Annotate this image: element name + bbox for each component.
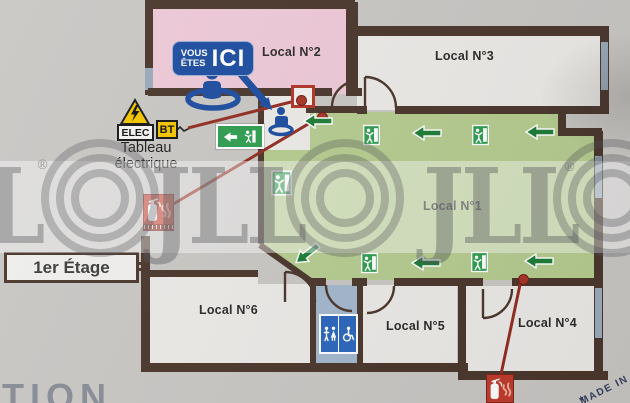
wc-men-women-icon xyxy=(321,316,338,352)
toilet-signs xyxy=(319,314,358,354)
room-label-local-2: Local N°2 xyxy=(262,45,321,59)
room-label-local-6: Local N°6 xyxy=(199,303,258,317)
leader-dot xyxy=(296,95,307,106)
exit-direction-arrow-icon xyxy=(525,124,555,140)
exit-direction-arrow-icon xyxy=(412,125,442,141)
watermark-circle-logo xyxy=(40,138,160,258)
bt-label-box: BT xyxy=(156,120,178,139)
badge-text-ici: ICI xyxy=(212,45,246,73)
exit-runner-icon xyxy=(243,129,257,144)
exit-direction-arrow-icon xyxy=(303,113,333,129)
exit-arrow-left-icon xyxy=(223,131,238,143)
wheelchair-accessible-icon xyxy=(339,316,356,352)
watermark-circle-logo xyxy=(285,138,405,258)
fire-extinguisher-icon xyxy=(486,374,514,403)
room-label-local-5: Local N°5 xyxy=(386,319,445,333)
electric-warning-triangle-icon xyxy=(120,98,150,126)
watermark-bottom-fragment: TION xyxy=(2,376,112,403)
you-are-here-badge: VOUS ÊTES ICI xyxy=(172,41,254,76)
emergency-exit-door-icon xyxy=(472,124,489,146)
room-label-local-4: Local N°4 xyxy=(518,316,577,330)
watermark-letters-jll: JLL xyxy=(150,155,304,259)
floor-label-text: 1er Étage xyxy=(33,258,110,278)
watermark-circle-logo xyxy=(552,138,630,258)
leader-dot xyxy=(518,274,529,285)
room-label-local-3: Local N°3 xyxy=(435,49,494,63)
badge-text-small: VOUS ÊTES xyxy=(181,49,208,69)
evacuation-plan-photo: Local N°2 Local N°3 Local N°1 Local N°6 … xyxy=(0,0,630,403)
floor-box-connector xyxy=(139,268,150,271)
floor-box-connector xyxy=(139,262,150,265)
